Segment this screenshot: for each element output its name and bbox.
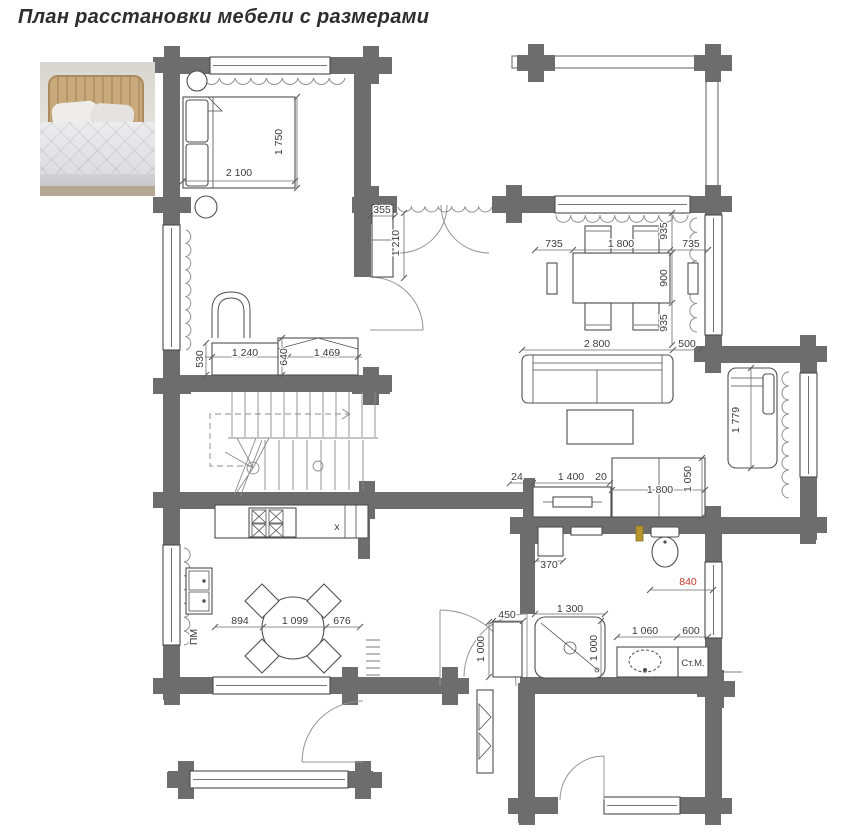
- dim-dining-gap-left: 735: [545, 238, 563, 250]
- daybed-bolster: [763, 374, 774, 414]
- photo-duvet: [40, 122, 155, 180]
- dim-kitchen-gap-left: 894: [231, 615, 249, 627]
- armchair: [212, 292, 250, 338]
- round-side-table: [187, 71, 207, 91]
- water-heater: [636, 526, 643, 541]
- bedroom-photo: [40, 62, 155, 196]
- dim-kitchen-table: 1 099: [282, 615, 308, 627]
- window: [604, 797, 680, 814]
- dim-dresser-width: 1 469: [314, 347, 340, 359]
- ladder-body: [477, 690, 493, 773]
- pillow: [186, 100, 208, 142]
- kitchen-sink: [186, 568, 212, 614]
- window: [190, 771, 348, 788]
- bath-cabinet: [538, 527, 563, 556]
- dim-daybed-length: 1 779: [730, 407, 742, 433]
- basin-faucet: [643, 668, 647, 672]
- dim-bed-width: 2 100: [226, 167, 252, 179]
- stair-walk-line: [210, 414, 350, 466]
- label-dishwasher: ПМ: [188, 629, 200, 645]
- dim-tv-stand: 1 400: [558, 471, 584, 483]
- porch-ladder: [477, 690, 493, 773]
- window: [705, 562, 722, 638]
- window: [213, 677, 330, 694]
- radiator-wave: [186, 230, 191, 350]
- stair-post: [313, 461, 323, 471]
- dim-dining-gap-bottom: 935: [658, 314, 670, 332]
- sofa: [522, 355, 673, 403]
- vanity: [617, 647, 678, 677]
- shelf: [571, 527, 602, 535]
- dim-desk-depth: 530: [194, 350, 206, 368]
- dim-hall-cabinet-width: 355: [373, 204, 391, 216]
- kitchen-furniture: [186, 505, 380, 675]
- radiator-wave: [188, 78, 345, 84]
- page-title: План расстановки мебели с размерами: [18, 6, 429, 29]
- pillow: [186, 144, 208, 186]
- chair: [633, 303, 659, 330]
- bedroom-door: [370, 277, 423, 330]
- entrance-door-right-arc: [441, 205, 489, 253]
- dim-tv-gap-right: 20: [595, 471, 607, 483]
- chair: [547, 263, 557, 294]
- dim-hall-cabinet-depth: 1 210: [390, 230, 402, 256]
- bedroom-furniture: [183, 71, 358, 375]
- chair: [633, 226, 659, 253]
- dim-shower-depth: 1 000: [588, 635, 600, 661]
- photo-floor: [40, 186, 155, 196]
- stair-treads: [228, 392, 378, 490]
- porch-entry-door: [560, 756, 604, 800]
- window: [800, 373, 817, 477]
- dim-toilet-offset: 840: [679, 576, 697, 588]
- dim-vanity-width: 1 060: [632, 625, 658, 637]
- dim-dining-table-width: 900: [658, 269, 670, 287]
- dim-desk-width: 1 240: [232, 347, 258, 359]
- window: [210, 57, 330, 74]
- radiator-wave: [556, 215, 688, 222]
- dim-bath-cab-depth: 1 000: [475, 636, 487, 662]
- faucet: [202, 599, 205, 602]
- bath-cabinet-tall: [493, 622, 522, 677]
- dim-dresser-depth: 640: [278, 348, 290, 366]
- label-washing-machine: Ст.М.: [681, 658, 704, 669]
- dim-sideboard-depth: 1 050: [682, 466, 694, 492]
- dim-dining-gap-top: 935: [658, 222, 670, 240]
- chair: [688, 263, 698, 294]
- terrace-wall: [706, 68, 718, 190]
- dim-sideboard-length: 1 800: [647, 484, 673, 496]
- radiator-wave: [398, 207, 492, 212]
- dim-tv-gap-left: 24: [511, 471, 523, 483]
- window: [705, 215, 722, 335]
- tv: [553, 497, 592, 507]
- round-side-table: [195, 196, 217, 218]
- dim-shower-width: 1 300: [557, 603, 583, 615]
- dim-bed-depth: 1 750: [273, 129, 285, 155]
- floor-plan-page: План расстановки мебели с размерами: [0, 0, 842, 834]
- window: [163, 545, 180, 645]
- stove: [249, 508, 296, 537]
- radiator-wave: [782, 372, 789, 498]
- dim-sofa-gap: 500: [678, 338, 696, 350]
- dim-sofa-length: 2 800: [584, 338, 610, 350]
- dim-bath-cabinet: 370: [540, 559, 558, 571]
- faucet: [202, 579, 205, 582]
- label-fridge-mark: x: [334, 521, 340, 533]
- staircase: [210, 392, 378, 497]
- towel-rail: [366, 640, 380, 675]
- dim-bath-cab-width: 450: [498, 609, 516, 621]
- terrace-door: [302, 701, 363, 762]
- dim-washer-width: 600: [682, 625, 700, 637]
- coffee-table: [567, 410, 633, 444]
- window: [163, 225, 180, 350]
- chair: [585, 303, 611, 330]
- toilet-flush: [663, 540, 666, 543]
- toilet-tank: [651, 527, 679, 537]
- dim-kitchen-gap-right: 676: [333, 615, 351, 627]
- dim-dining-gap-right: 735: [682, 238, 700, 250]
- dim-dining-table-length: 1 800: [608, 238, 634, 250]
- dining-table: [573, 253, 670, 303]
- window: [555, 196, 690, 213]
